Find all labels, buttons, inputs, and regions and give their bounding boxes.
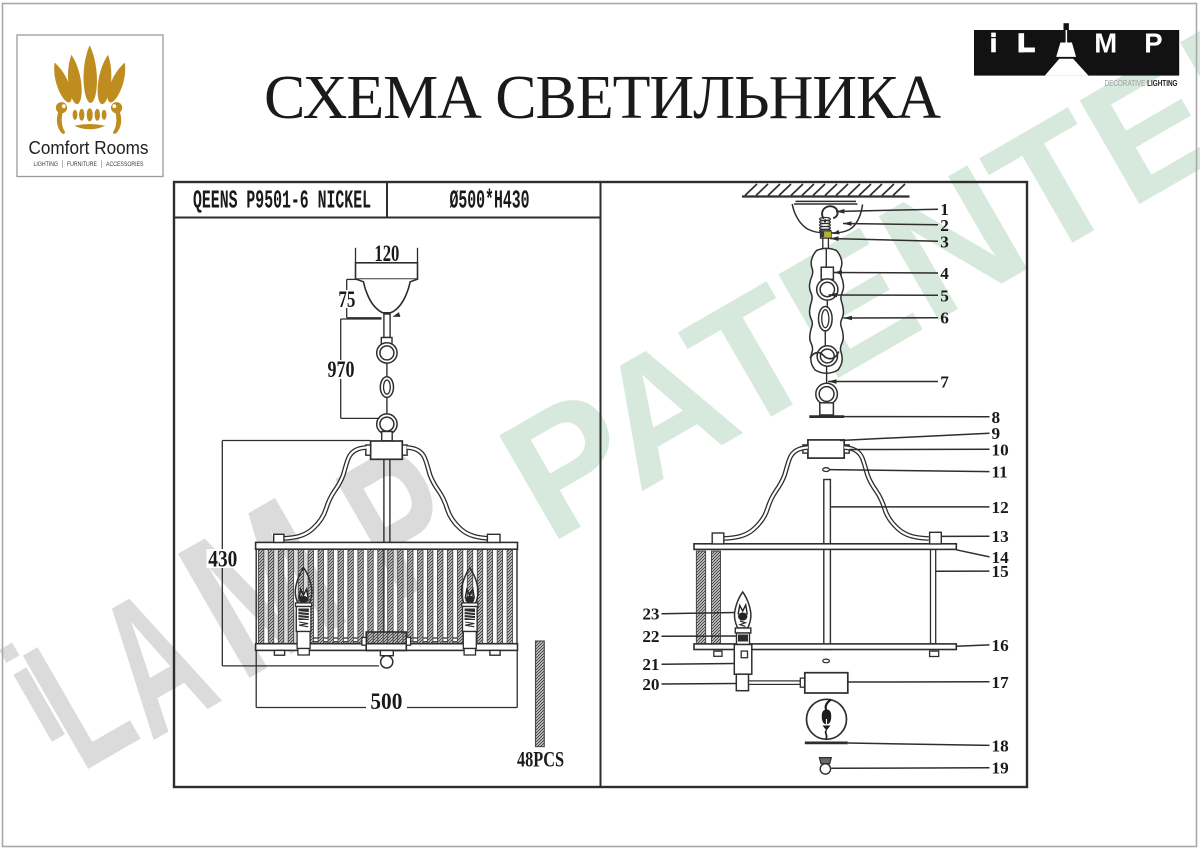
svg-text:LIGHTING │ FURNITURE │ ACC: LIGHTING │ FURNITURE │ ACCESSORIES <box>34 160 144 168</box>
svg-text:23: 23 <box>642 605 659 624</box>
svg-text:Ø500*H430: Ø500*H430 <box>450 185 530 215</box>
svg-text:19: 19 <box>992 759 1009 778</box>
svg-text:22: 22 <box>642 627 659 646</box>
svg-text:18: 18 <box>992 736 1010 755</box>
svg-text:M: M <box>1094 27 1117 58</box>
svg-text:4: 4 <box>940 264 949 283</box>
svg-text:17: 17 <box>992 673 1010 692</box>
svg-text:970: 970 <box>328 357 355 382</box>
svg-text:5: 5 <box>940 286 949 305</box>
svg-text:13: 13 <box>992 527 1009 546</box>
svg-text:21: 21 <box>642 655 659 674</box>
svg-text:16: 16 <box>992 636 1010 655</box>
svg-text:СХЕМА СВЕТИЛЬНИКА: СХЕМА СВЕТИЛЬНИКА <box>264 64 941 132</box>
svg-text:75: 75 <box>338 287 355 312</box>
svg-text:QEENS P9501-6 NICKEL: QEENS P9501-6 NICKEL <box>193 185 371 215</box>
svg-text:15: 15 <box>992 562 1009 581</box>
svg-text:7: 7 <box>940 373 949 392</box>
svg-text:DECORATIVE LIGHTING: DECORATIVE LIGHTING <box>1105 79 1178 88</box>
svg-text:12: 12 <box>992 498 1009 517</box>
svg-text:P: P <box>1144 27 1162 58</box>
svg-text:430: 430 <box>208 546 237 571</box>
svg-text:10: 10 <box>992 440 1009 459</box>
svg-text:3: 3 <box>940 232 949 251</box>
svg-text:6: 6 <box>940 309 949 328</box>
svg-text:11: 11 <box>992 463 1008 482</box>
svg-text:20: 20 <box>642 675 659 694</box>
svg-text:Comfort Rooms: Comfort Rooms <box>29 137 149 158</box>
svg-text:48PCS: 48PCS <box>517 747 564 772</box>
svg-text:500: 500 <box>370 689 402 714</box>
